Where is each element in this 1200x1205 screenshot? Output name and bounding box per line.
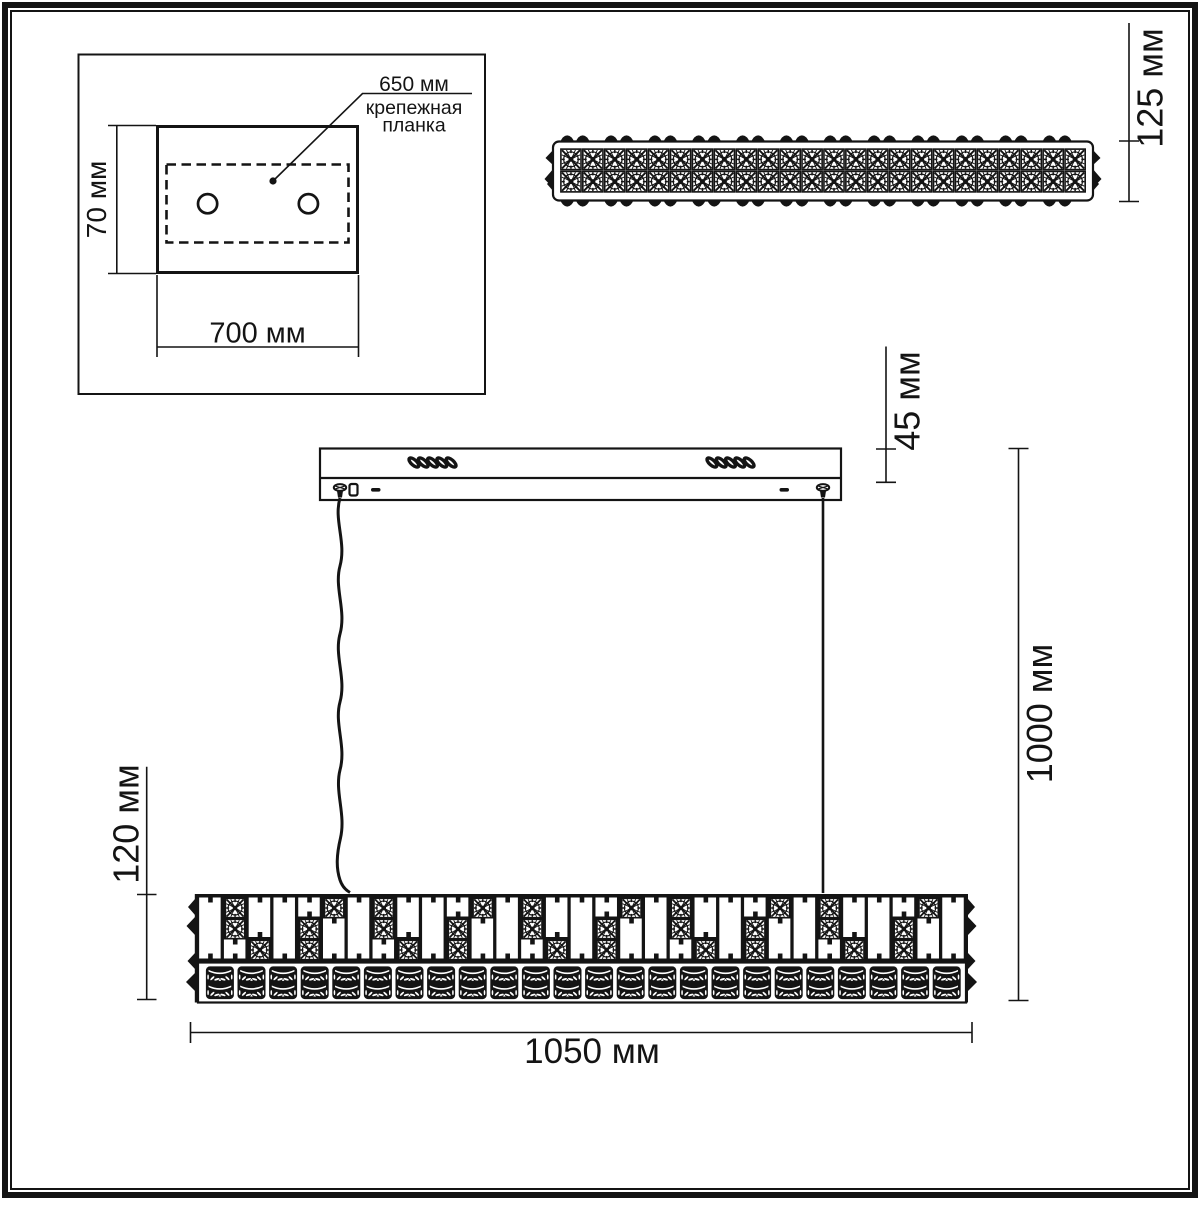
- svg-text:планка: планка: [382, 115, 446, 137]
- svg-text:120 мм: 120 мм: [106, 764, 147, 884]
- svg-text:45 мм: 45 мм: [887, 351, 928, 451]
- svg-text:650 мм: 650 мм: [379, 73, 449, 96]
- svg-text:125 мм: 125 мм: [1130, 28, 1171, 148]
- svg-text:70 мм: 70 мм: [81, 161, 112, 238]
- svg-text:1050 мм: 1050 мм: [524, 1032, 660, 1071]
- svg-text:1000 мм: 1000 мм: [1019, 644, 1060, 784]
- svg-text:700 мм: 700 мм: [209, 318, 305, 350]
